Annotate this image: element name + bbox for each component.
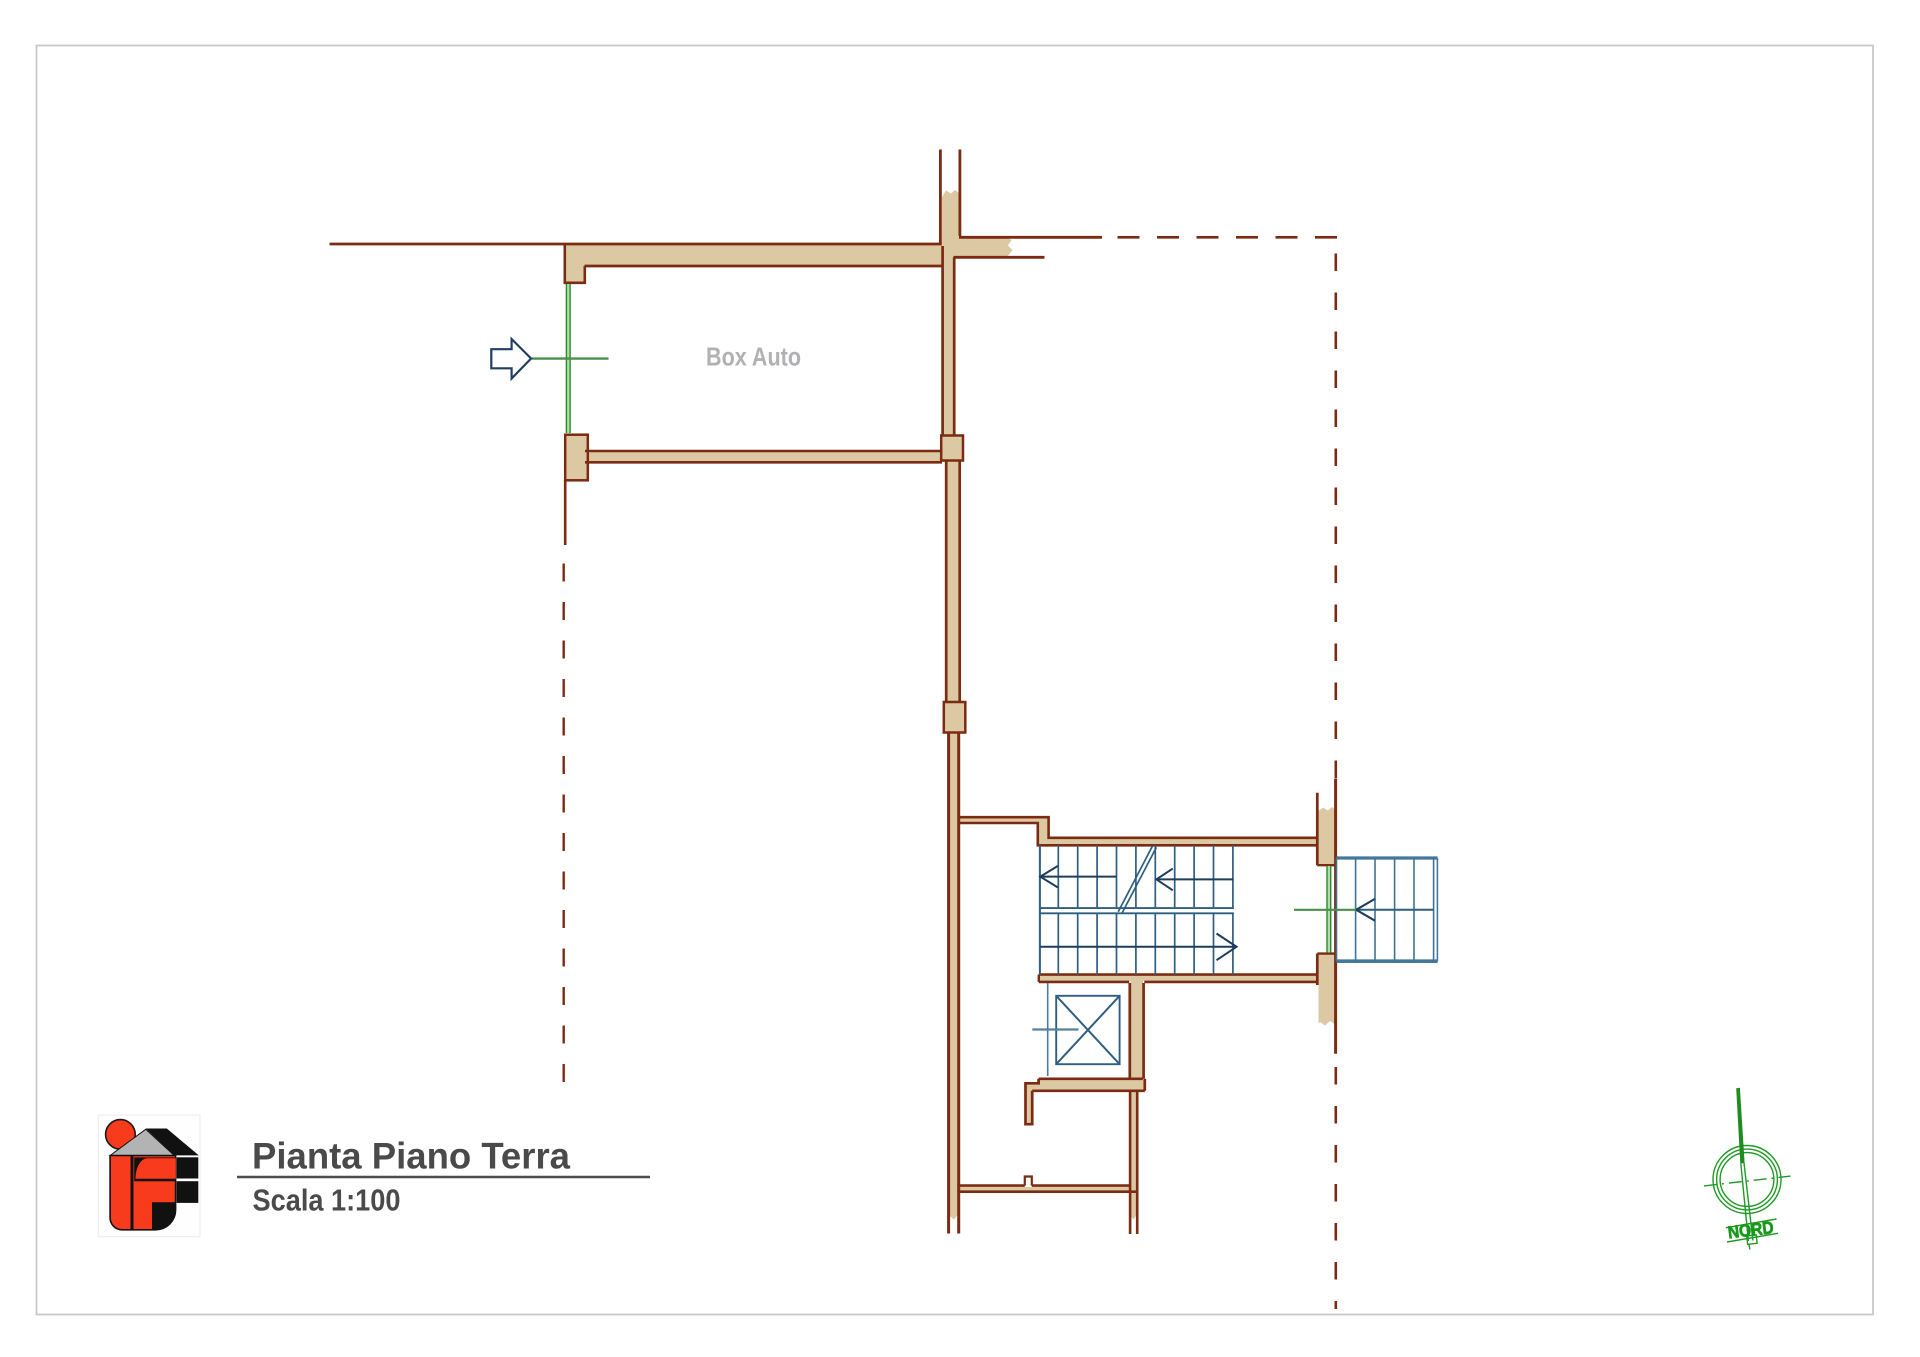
svg-text:Box Auto: Box Auto <box>706 342 801 372</box>
svg-text:Scala 1:100: Scala 1:100 <box>253 1183 401 1218</box>
svg-text:Pianta Piano Terra: Pianta Piano Terra <box>252 1136 570 1177</box>
